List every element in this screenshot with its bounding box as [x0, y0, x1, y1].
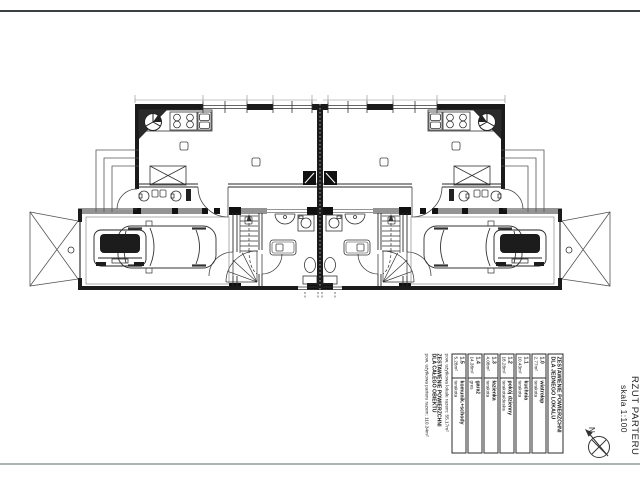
room-name: garaż — [475, 381, 481, 452]
area-table-header: ZESTAWIENIE POWIERZCHNI DLA JEDNEGO LOKA… — [548, 354, 564, 454]
unit-total: pow. użytkowa lokalu razem: 55.17m² — [444, 354, 450, 454]
table-row: 1.218.28m² pokój dziennyterakota/deska — [500, 354, 515, 454]
room-number: 1.0 — [539, 357, 545, 377]
drawing-sheet: N ZESTAWIENIE POWIERZCHNI DLA JEDNEGO LO… — [0, 0, 640, 480]
room-finish: terakota — [533, 381, 539, 452]
room-number: 1.2 — [507, 357, 513, 377]
north-label: N — [587, 427, 596, 433]
room-number: 1.3 — [491, 357, 497, 377]
room-name: pokój dzienny — [507, 381, 513, 452]
table-row: 1.34.08m² łazienkaterakota — [484, 354, 499, 454]
right-unit — [320, 95, 610, 299]
room-name: łazienka — [491, 381, 497, 452]
table-row: 1.55.28m² komunik.+schodyterakota — [452, 354, 467, 454]
table-row: 1.110.43m² kuchniaterakota — [516, 354, 531, 454]
room-area: 18.28m² — [501, 357, 507, 377]
room-finish: terakota — [453, 381, 459, 452]
room-finish: gres — [469, 381, 475, 452]
room-area: 14.38m² — [469, 357, 475, 377]
room-number: 1.4 — [475, 357, 481, 377]
room-area: 4.08m² — [485, 357, 491, 377]
header-line1: ZESTAWIENIE POWIERZCHNI — [556, 357, 562, 453]
room-number: 1.1 — [523, 357, 529, 377]
area-table: ZESTAWIENIE POWIERZCHNI DLA JEDNEGO LOKA… — [407, 354, 564, 454]
area-table-footer: pow. użytkowa lokalu razem: 55.17m² ZEST… — [424, 354, 449, 454]
room-finish: terakota — [485, 381, 491, 452]
room-finish: terakota — [517, 381, 523, 452]
drawing-scale: skala 1:100 — [619, 376, 629, 454]
drawing-title: RZUT PARTERU — [629, 376, 640, 454]
room-area: 5.28m² — [453, 357, 459, 377]
room-area: 10.43m² — [517, 357, 523, 377]
table-row: 1.02.77m² wiatrołapterakota — [532, 354, 547, 454]
building-total: pow. użytkowa parteru razem: 110.34m² — [424, 354, 430, 454]
room-name: kuchnia — [523, 381, 529, 452]
party-wall — [317, 104, 323, 290]
building-header-line2: DLA CAŁEGO OBIEKTU — [430, 354, 436, 454]
room-finish: terakota/deska — [501, 381, 507, 452]
table-row: 1.414.38m² garażgres — [468, 354, 483, 454]
room-number: 1.5 — [459, 357, 465, 377]
left-unit — [30, 95, 320, 299]
north-arrow: N — [585, 427, 610, 458]
room-area: 2.77m² — [533, 357, 539, 377]
title-block: RZUT PARTERU skala 1:100 — [616, 376, 640, 454]
room-name: komunik.+schody — [459, 381, 465, 452]
room-name: wiatrołap — [539, 381, 545, 452]
header-line2: DLA JEDNEGO LOKALU — [549, 357, 555, 453]
